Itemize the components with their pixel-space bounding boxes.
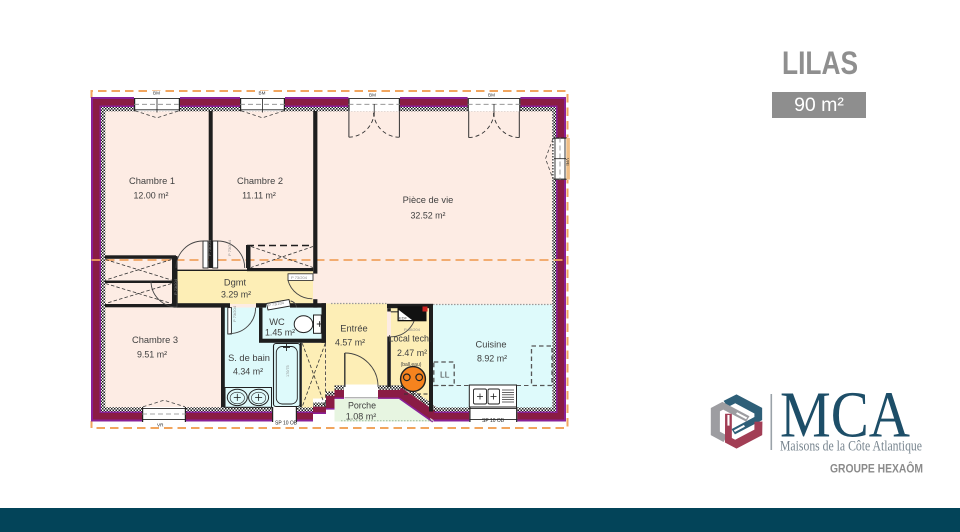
svg-text:Chambre 2: Chambre 2 — [237, 176, 283, 186]
svg-text:EDF: EDF — [399, 316, 408, 321]
svg-text:VR: VR — [157, 423, 164, 428]
svg-text:32.52 m²: 32.52 m² — [410, 211, 445, 221]
svg-text:11.11 m²: 11.11 m² — [242, 191, 276, 201]
svg-text:P 73/204: P 73/204 — [227, 239, 232, 256]
svg-text:Cuisine: Cuisine — [475, 340, 506, 350]
svg-text:9.51 m²: 9.51 m² — [137, 350, 167, 360]
svg-text:P 73/204: P 73/204 — [207, 239, 212, 256]
svg-text:(ball.eau): (ball.eau) — [401, 362, 422, 368]
svg-text:LL: LL — [440, 370, 450, 380]
svg-text:LILAS: LILAS — [782, 45, 858, 81]
svg-text:Pièce de vie: Pièce de vie — [403, 195, 454, 205]
svg-text:3.29 m²: 3.29 m² — [221, 290, 251, 300]
svg-text:Porche: Porche — [348, 401, 376, 411]
svg-text:P 73/204: P 73/204 — [232, 305, 237, 322]
svg-text:1.45 m²: 1.45 m² — [265, 328, 295, 338]
svg-text:170/75: 170/75 — [286, 365, 290, 377]
svg-text:SP 10 OB: SP 10 OB — [482, 418, 505, 424]
svg-text:SP 10 OB: SP 10 OB — [275, 421, 298, 427]
svg-text:GROUPE HEXAÔM: GROUPE HEXAÔM — [830, 463, 923, 476]
svg-text:12.00 m²: 12.00 m² — [133, 191, 168, 201]
svg-text:BM: BM — [259, 91, 266, 96]
svg-text:Local tech.: Local tech. — [389, 334, 432, 344]
svg-text:4.57 m²: 4.57 m² — [335, 338, 365, 348]
svg-text:Chambre 1: Chambre 1 — [129, 176, 175, 186]
svg-text:4.34 m²: 4.34 m² — [233, 367, 263, 377]
svg-text:P 80/204: P 80/204 — [404, 327, 421, 332]
svg-text:P 73/204: P 73/204 — [173, 278, 178, 295]
svg-text:Dgmt: Dgmt — [224, 278, 247, 288]
svg-text:WC: WC — [269, 317, 285, 327]
svg-text:Chambre 3: Chambre 3 — [132, 335, 178, 345]
svg-text:2.47 m²: 2.47 m² — [397, 348, 427, 358]
svg-text:Maisons de la Côte Atlantique: Maisons de la Côte Atlantique — [780, 439, 922, 455]
svg-text:BM: BM — [488, 93, 495, 98]
svg-text:Entrée: Entrée — [340, 324, 367, 334]
svg-text:BM: BM — [153, 91, 160, 96]
svg-text:P 73/204: P 73/204 — [291, 275, 308, 280]
svg-text:8.92 m²: 8.92 m² — [477, 354, 507, 364]
svg-text:BM: BM — [369, 93, 376, 98]
svg-text:90 m²: 90 m² — [794, 94, 844, 116]
svg-text:1.08 m²: 1.08 m² — [346, 412, 377, 422]
svg-text:VRI: VRI — [565, 158, 570, 166]
svg-text:S. de bain: S. de bain — [228, 353, 270, 363]
